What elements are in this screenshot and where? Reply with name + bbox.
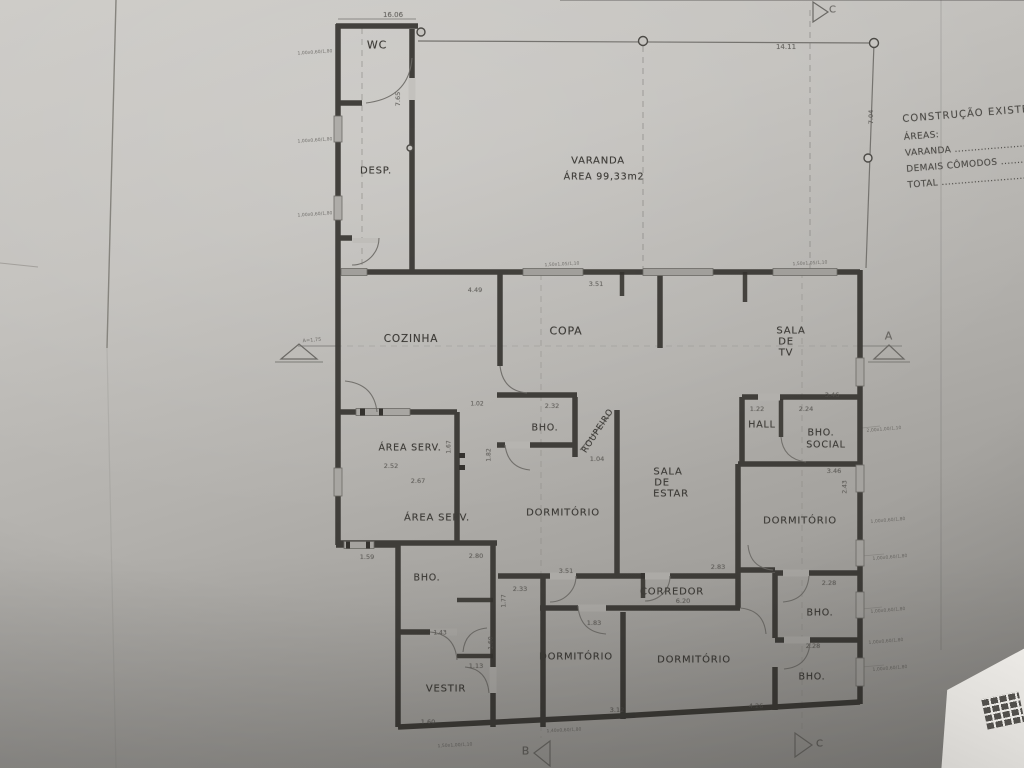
- dimension-label: 1.83: [587, 619, 601, 627]
- dimension-label: 2.43: [842, 480, 849, 493]
- room-label-sala-de-estar: DE: [654, 478, 670, 489]
- section-marker-label-c: C: [816, 739, 824, 750]
- room-label-bho-social: SOCIAL: [806, 440, 846, 451]
- room-label-varanda: VARANDA: [571, 156, 625, 167]
- dimension-label: 1.67: [446, 440, 453, 453]
- room-label-bho-social: BHO.: [808, 428, 835, 439]
- dimension-label: 1.60: [421, 718, 435, 726]
- room-label-area-serv-1: ÁREA SERV.: [378, 443, 441, 454]
- dimension-label: 2.28: [822, 579, 836, 587]
- dimension-label: 2.32: [545, 402, 559, 410]
- room-label-sala-de-estar: SALA: [653, 467, 682, 478]
- room-label-area-serv-2: ÁREA SERV.: [404, 513, 470, 524]
- room-label-corredor: CORREDOR: [640, 587, 704, 598]
- room-label-sala-de-estar: ESTAR: [653, 489, 689, 500]
- dimension-label: 2.83: [711, 563, 725, 571]
- dimension-label: 2.33: [513, 585, 527, 593]
- dimension-label: 1.77: [501, 594, 508, 607]
- dimension-label: 1.60: [488, 636, 495, 649]
- window-annotation: 1,40x0,60/1,80: [546, 727, 581, 734]
- room-label-desp: DESP.: [360, 166, 392, 177]
- notes-areas-label: ÁREAS:: [903, 122, 1024, 143]
- room-label-sala-de-tv: DE: [778, 337, 794, 348]
- section-marker-label-a: A: [885, 330, 894, 343]
- room-label-bho-3: BHO.: [807, 608, 834, 619]
- labels-layer: WCDESP.VARANDAÁREA 99,33m2COZINHACOPASAL…: [0, 0, 1024, 768]
- window-annotation: 1,50x1,05/1,10: [792, 260, 827, 267]
- window-annotation: 1,00x0,60/1,80: [872, 553, 907, 561]
- room-label-vestir: VESTIR: [426, 684, 466, 695]
- dimension-label: 1.22: [750, 405, 764, 413]
- room-label-copa: COPA: [550, 325, 583, 338]
- room-label-sala-de-tv: TV: [779, 348, 794, 359]
- dimension-label: 1.43: [433, 630, 446, 637]
- room-label-dormitorio-1: DORMITÓRIO: [526, 508, 600, 519]
- grid-stamp-icon: [981, 691, 1024, 729]
- window-annotation: 1,00x0,60/1,80: [870, 516, 905, 524]
- dimension-label: 3.46: [825, 391, 839, 399]
- dimension-label: 3.51: [559, 567, 573, 575]
- construction-notes: CONSTRUÇÃO EXISTENTE ÁREAS: VARANDA ....…: [902, 103, 1024, 197]
- dimension-label: 6.20: [676, 597, 690, 605]
- room-label-bho-4: BHO.: [799, 672, 826, 683]
- window-annotation: 1,00x0,60/1,80: [297, 210, 332, 217]
- room-label-hall: HALL: [748, 420, 775, 431]
- varanda-area-value: ÁREA 99,33m2: [564, 172, 645, 183]
- window-annotation: 1,00x0,60/1,80: [872, 664, 907, 672]
- dimension-label: 2.67: [411, 477, 425, 485]
- floorplan-photo: WCDESP.VARANDAÁREA 99,33m2COZINHACOPASAL…: [0, 0, 1024, 768]
- dimension-label: 1.02: [470, 401, 483, 408]
- window-annotation: 1,00x0,60/1,80: [868, 637, 903, 645]
- dimension-label: 4.49: [468, 286, 482, 294]
- dimension-label: 1.82: [486, 448, 493, 461]
- dimension-label: 3.12: [610, 706, 624, 714]
- dimension-label: 1.04: [590, 455, 604, 463]
- section-marker-label-b: B: [522, 745, 531, 758]
- dimension-label: 7.65: [394, 92, 402, 106]
- room-label-sala-de-tv: SALA: [776, 326, 805, 337]
- room-label-bho-2: BHO.: [414, 573, 441, 584]
- room-label-dormitorio-4: DORMITÓRIO: [657, 655, 731, 666]
- room-label-roupeiro: ROUPEIRO: [580, 407, 616, 455]
- window-annotation: 1,00x0,60/1,80: [297, 48, 332, 55]
- room-label-bho-1: BHO.: [532, 423, 559, 434]
- section-marker-label-c-top: C: [829, 5, 837, 16]
- dimension-label: 2.28: [806, 642, 820, 650]
- window-annotation: 1,00x0,60/1,80: [297, 136, 332, 143]
- window-annotation: 1,50x1,00/1,10: [437, 742, 472, 749]
- dimension-label: 16.06: [383, 11, 403, 19]
- section-note: A=1,75: [302, 336, 321, 343]
- dimension-label: 2.80: [469, 552, 483, 560]
- dimension-label: 4.26: [749, 702, 763, 710]
- dimension-label: 1.59: [360, 553, 374, 561]
- dimension-label: 3.51: [589, 280, 603, 288]
- dimension-label: 2.52: [384, 462, 398, 470]
- dimension-label: 1.13: [469, 662, 483, 670]
- window-annotation: 2,00x1,00/1,10: [866, 425, 901, 433]
- room-label-dormitorio-2: DORMITÓRIO: [763, 516, 837, 527]
- dimension-label: 2.24: [799, 405, 813, 413]
- window-annotation: 1,50x1,05/1,10: [544, 261, 579, 268]
- room-label-dormitorio-3: DORMITÓRIO: [539, 652, 613, 663]
- room-label-cozinha: COZINHA: [384, 333, 438, 345]
- window-annotation: 1,00x0,60/1,80: [870, 606, 905, 614]
- dimension-label: 14.11: [776, 43, 796, 51]
- room-label-wc: WC: [367, 39, 387, 52]
- dimension-label: 3.46: [827, 467, 841, 475]
- dimension-label: 7.04: [867, 110, 875, 124]
